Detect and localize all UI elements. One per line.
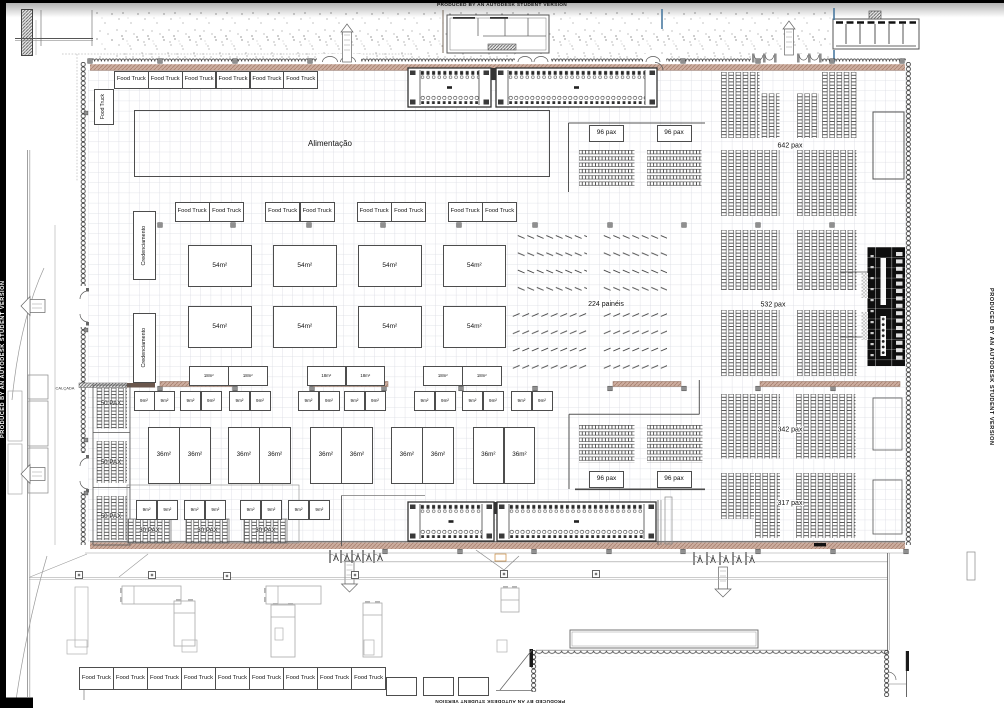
svg-text:317 pax: 317 pax — [778, 500, 803, 507]
svg-text:342 pax: 342 pax — [778, 427, 803, 434]
svg-text:532 pax: 532 pax — [761, 302, 786, 309]
svg-text:CALÇADA: CALÇADA — [56, 386, 75, 391]
svg-text:642 pax: 642 pax — [778, 143, 803, 150]
svg-text:224 painéis: 224 painéis — [588, 301, 624, 308]
